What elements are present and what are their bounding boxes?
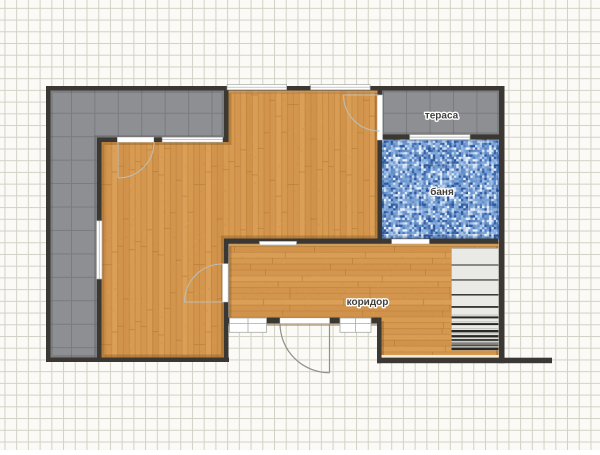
svg-text:коридор: коридор [347, 297, 389, 308]
svg-text:баня: баня [430, 186, 454, 198]
svg-text:тераса: тераса [425, 110, 459, 121]
